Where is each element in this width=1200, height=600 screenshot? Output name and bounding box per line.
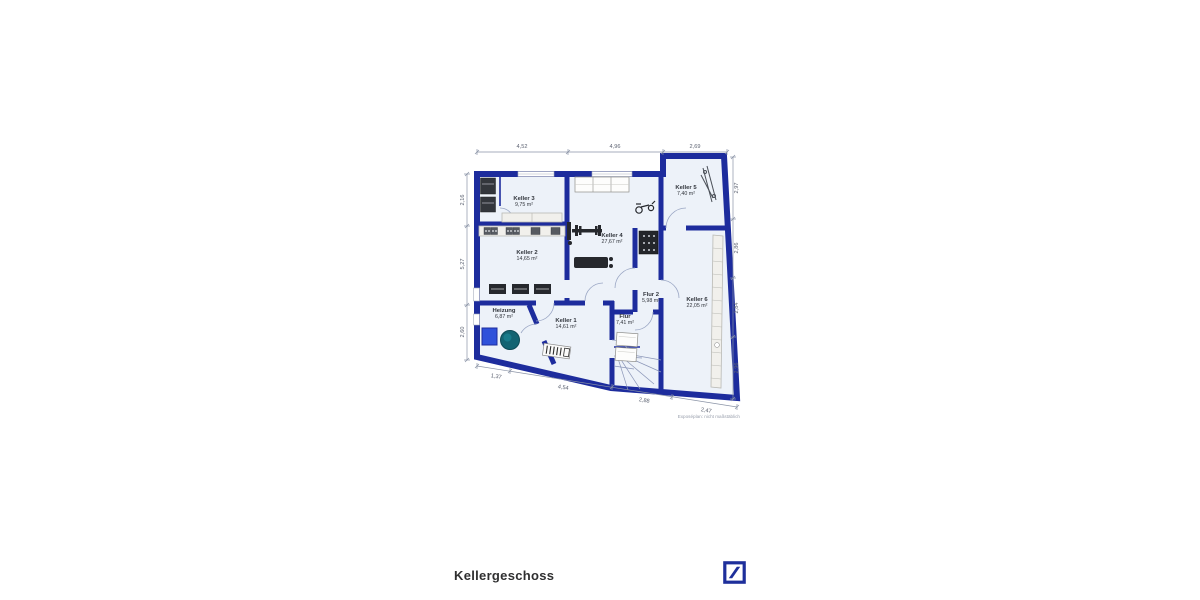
room-area-keller3: 9,75 m² xyxy=(515,202,533,208)
plan-scale-note: Exposéplan: nicht maßstäblich xyxy=(678,414,741,419)
keller6-shelf-icon xyxy=(711,235,723,388)
dim-left-2: 5,27 xyxy=(460,259,466,270)
dim-right-3: 2,84 xyxy=(734,303,740,314)
dim-bottom-1: 1,37 xyxy=(490,373,502,381)
keller4-shelf-icon xyxy=(575,177,629,192)
room-area-keller1: 14,61 m² xyxy=(556,324,577,330)
dim-right-1: 2,97 xyxy=(734,183,740,194)
room-area-keller2: 14,65 m² xyxy=(517,256,538,262)
keller3-shelf-icon xyxy=(502,213,562,222)
keller2-shelf-band-icon xyxy=(479,226,565,236)
oil-tank-icon xyxy=(482,328,497,345)
boiler-icon xyxy=(501,331,520,350)
room-area-flur2: 5,98 m² xyxy=(642,298,660,304)
room-area-keller5: 7,40 m² xyxy=(677,191,695,197)
deutsche-bank-logo xyxy=(723,561,746,584)
room-area-keller6: 22,05 m² xyxy=(687,303,708,309)
room-area-heizung: 6,87 m² xyxy=(495,314,513,320)
page-canvas: Keller 3 9,75 m² Keller 2 14,65 m² Kelle… xyxy=(0,0,1200,600)
dimension-lines-left: 2,16 5,27 2,60 xyxy=(460,172,470,362)
dim-top-3: 2,69 xyxy=(690,144,701,150)
dumbbell-rack-icon xyxy=(639,231,658,254)
dim-top-1: 4,52 xyxy=(517,144,528,150)
room-area-flur: 7,41 m² xyxy=(616,320,634,326)
dim-right-4: 2,96 xyxy=(734,363,740,374)
dim-left-1: 2,16 xyxy=(460,195,466,206)
dim-bottom-2: 4,54 xyxy=(557,384,569,392)
room-area-keller4: 27,67 m² xyxy=(602,239,623,245)
floor-title: Kellergeschoss xyxy=(454,568,554,583)
dim-left-3: 2,60 xyxy=(460,327,466,338)
keller2-storage-units-icon xyxy=(489,284,551,294)
weight-bench-icon xyxy=(574,257,613,268)
floor-plan: Keller 3 9,75 m² Keller 2 14,65 m² Kelle… xyxy=(0,0,1200,600)
dim-right-2: 2,86 xyxy=(734,243,740,254)
deutsche-bank-logo-icon xyxy=(723,561,746,584)
dim-top-2: 4,96 xyxy=(610,144,621,150)
dim-bottom-3: 2,88 xyxy=(638,397,650,405)
